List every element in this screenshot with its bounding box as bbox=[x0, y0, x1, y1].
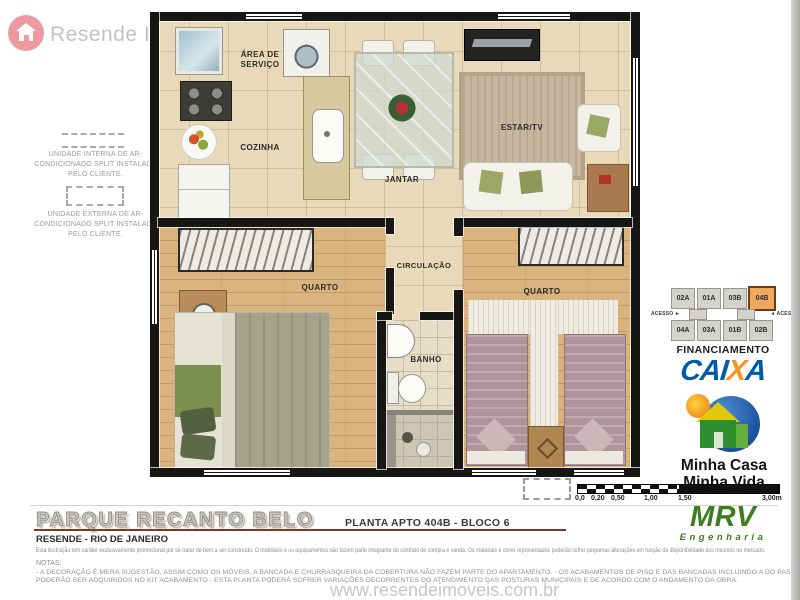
note-line-1: - A DECORAÇÃO É MERA SUGESTÃO, ASSIM COM… bbox=[36, 569, 800, 576]
wardrobe bbox=[178, 228, 314, 272]
room-label-cozinha: COZINHA bbox=[222, 143, 298, 153]
floor-plan: ÁREA DE SERVIÇO COZINHA JANTAR ESTAR/TV … bbox=[150, 12, 640, 477]
wall-bedroom2-top bbox=[454, 218, 632, 227]
shower-wall-strip bbox=[386, 415, 396, 469]
mcmv-house-wing-shape bbox=[736, 424, 748, 448]
keyplan-lobby-block bbox=[737, 309, 755, 320]
house-roof-shape bbox=[16, 23, 36, 31]
stove-cooktop bbox=[180, 81, 232, 121]
caixa-letters-blue: CAI bbox=[679, 355, 729, 387]
sofa-cushion bbox=[519, 170, 543, 194]
minha-casa-minha-vida-logo: Minha Casa Minha Vida bbox=[662, 394, 786, 492]
scale-checks-bottom bbox=[578, 489, 679, 493]
plan-reference: PLANTA APTO 404B - BLOCO 6 bbox=[345, 517, 510, 529]
scale-tick-0: 0,0 bbox=[575, 495, 585, 502]
window bbox=[498, 13, 570, 20]
window bbox=[632, 58, 639, 186]
shower-drain bbox=[402, 432, 413, 443]
external-ac-legend-label: UNIDADE EXTERNA DE AR-CONDICIONADO SPLIT… bbox=[28, 210, 163, 239]
nightstand bbox=[528, 426, 564, 470]
notes-label: NOTAS: bbox=[36, 560, 62, 567]
room-label-circulacao: CIRCULAÇÃO bbox=[388, 261, 460, 270]
mrv-subtitle: Engenharia bbox=[656, 532, 790, 543]
window bbox=[151, 250, 158, 324]
building-key-plan: 02A 01A 03B 04B ACESSO ► ◄ ACESSO 04A 03… bbox=[651, 281, 799, 343]
bed-sheet-fold bbox=[222, 313, 235, 469]
scale-solid-segment bbox=[679, 485, 779, 493]
disclaimer-text: Esta ilustração tem caráter exclusivamen… bbox=[36, 547, 788, 554]
bed-base bbox=[467, 451, 525, 464]
table-flowers bbox=[388, 94, 416, 122]
wardrobe bbox=[518, 226, 624, 266]
tv-cabinet bbox=[464, 29, 540, 61]
unit-03A: 03A bbox=[697, 320, 721, 341]
armchair bbox=[577, 104, 621, 152]
wall-bedroom2-door-stub bbox=[454, 218, 463, 236]
unit-04A: 04A bbox=[671, 320, 695, 341]
room-label-servico: ÁREA DE SERVIÇO bbox=[240, 50, 280, 70]
window bbox=[472, 469, 536, 476]
mcmv-graphic bbox=[684, 394, 764, 454]
external-ac-unit-symbol bbox=[66, 186, 124, 206]
armchair-cushion bbox=[586, 114, 610, 138]
room-label-quarto2: QUARTO bbox=[500, 287, 584, 297]
unit-02B: 02B bbox=[749, 320, 773, 341]
side-table bbox=[587, 164, 629, 212]
single-bed bbox=[466, 334, 528, 466]
bed-base bbox=[565, 451, 623, 464]
kitchen-counter bbox=[303, 76, 350, 200]
washing-machine bbox=[283, 29, 330, 77]
caixa-wordmark: CAIXA bbox=[651, 356, 794, 386]
nightstand-ornament bbox=[537, 438, 558, 459]
shower-head bbox=[416, 442, 431, 457]
sofa-cushion bbox=[479, 170, 504, 195]
caixa-letters-blue: A bbox=[744, 355, 767, 387]
room-label-estar: ESTAR/TV bbox=[480, 123, 564, 133]
single-bed bbox=[564, 334, 626, 466]
scale-tick-300: 3,00m bbox=[762, 495, 782, 502]
external-ac-unit-marker bbox=[523, 478, 571, 500]
wall-left bbox=[150, 12, 159, 477]
keyplan-lobby-block bbox=[689, 309, 707, 320]
window bbox=[204, 469, 290, 476]
unit-02A: 02A bbox=[671, 288, 695, 309]
unit-01A: 01A bbox=[697, 288, 721, 309]
tv-screen bbox=[472, 39, 533, 47]
internal-ac-legend-label: UNIDADE INTERNA DE AR-CONDICIONADO SPLIT… bbox=[28, 150, 163, 179]
bed-pillow bbox=[179, 407, 216, 435]
house-door-shape bbox=[24, 35, 29, 41]
mcmv-door-shape bbox=[714, 432, 723, 448]
ac-legend: UNIDADE INTERNA DE AR-CONDICIONADO SPLIT… bbox=[28, 128, 163, 343]
toilet-bowl bbox=[398, 374, 426, 403]
room-label-banho: BANHO bbox=[396, 355, 456, 365]
window bbox=[574, 469, 624, 476]
page: Resende Imóveis UNIDADE INTERNA DE AR-CO… bbox=[0, 0, 800, 600]
wall-bedroom1-door-stub bbox=[386, 218, 394, 234]
mrv-logo: MRV Engenharia bbox=[656, 504, 790, 543]
bed-duvet bbox=[235, 313, 329, 469]
caixa-logo: FINANCIAMENTO CAIXA bbox=[653, 344, 793, 386]
faucet bbox=[324, 131, 330, 137]
room-label-quarto1: QUARTO bbox=[280, 283, 360, 293]
site-watermark: www.resendeimoveis.com.br bbox=[330, 580, 559, 600]
wall-bedroom2-left bbox=[454, 290, 463, 469]
unit-01B: 01B bbox=[723, 320, 747, 341]
location-label: RESENDE - RIO DE JANEIRO bbox=[36, 534, 168, 545]
sofa bbox=[463, 162, 573, 211]
footer-brown-rule bbox=[34, 529, 566, 531]
mrv-wordmark: MRV bbox=[656, 504, 790, 532]
wall-social-bedroom bbox=[158, 218, 388, 227]
scale-bar-graphic bbox=[577, 484, 780, 494]
mcmv-line1: Minha Casa bbox=[662, 457, 786, 474]
unit-03B: 03B bbox=[723, 288, 747, 309]
access-label-left: ACESSO ► bbox=[651, 311, 680, 317]
scale-tick-100: 1,00 bbox=[644, 495, 658, 502]
fridge-divider bbox=[179, 189, 229, 190]
wall-bathroom-top-a bbox=[377, 312, 392, 320]
wall-bedroom1-right bbox=[386, 268, 394, 314]
scale-tick-020: 0,20 bbox=[591, 495, 605, 502]
internal-ac-unit-symbol bbox=[62, 133, 124, 148]
page-edge-shadow bbox=[791, 0, 800, 600]
mcmv-roof-shape bbox=[696, 402, 740, 422]
shower-area bbox=[386, 415, 454, 469]
double-bed bbox=[174, 312, 330, 470]
kitchen-window-box bbox=[176, 28, 222, 74]
wall-bathroom-left bbox=[377, 312, 386, 469]
window bbox=[246, 13, 302, 20]
bed-pillow bbox=[180, 433, 216, 460]
side-table-object bbox=[599, 175, 611, 184]
room-label-jantar: JANTAR bbox=[370, 175, 434, 185]
unit-04B-highlighted: 04B bbox=[748, 286, 776, 311]
scale-tick-050: 0,50 bbox=[611, 495, 625, 502]
fruit-bowl bbox=[181, 124, 217, 160]
brand-house-icon bbox=[8, 15, 44, 51]
